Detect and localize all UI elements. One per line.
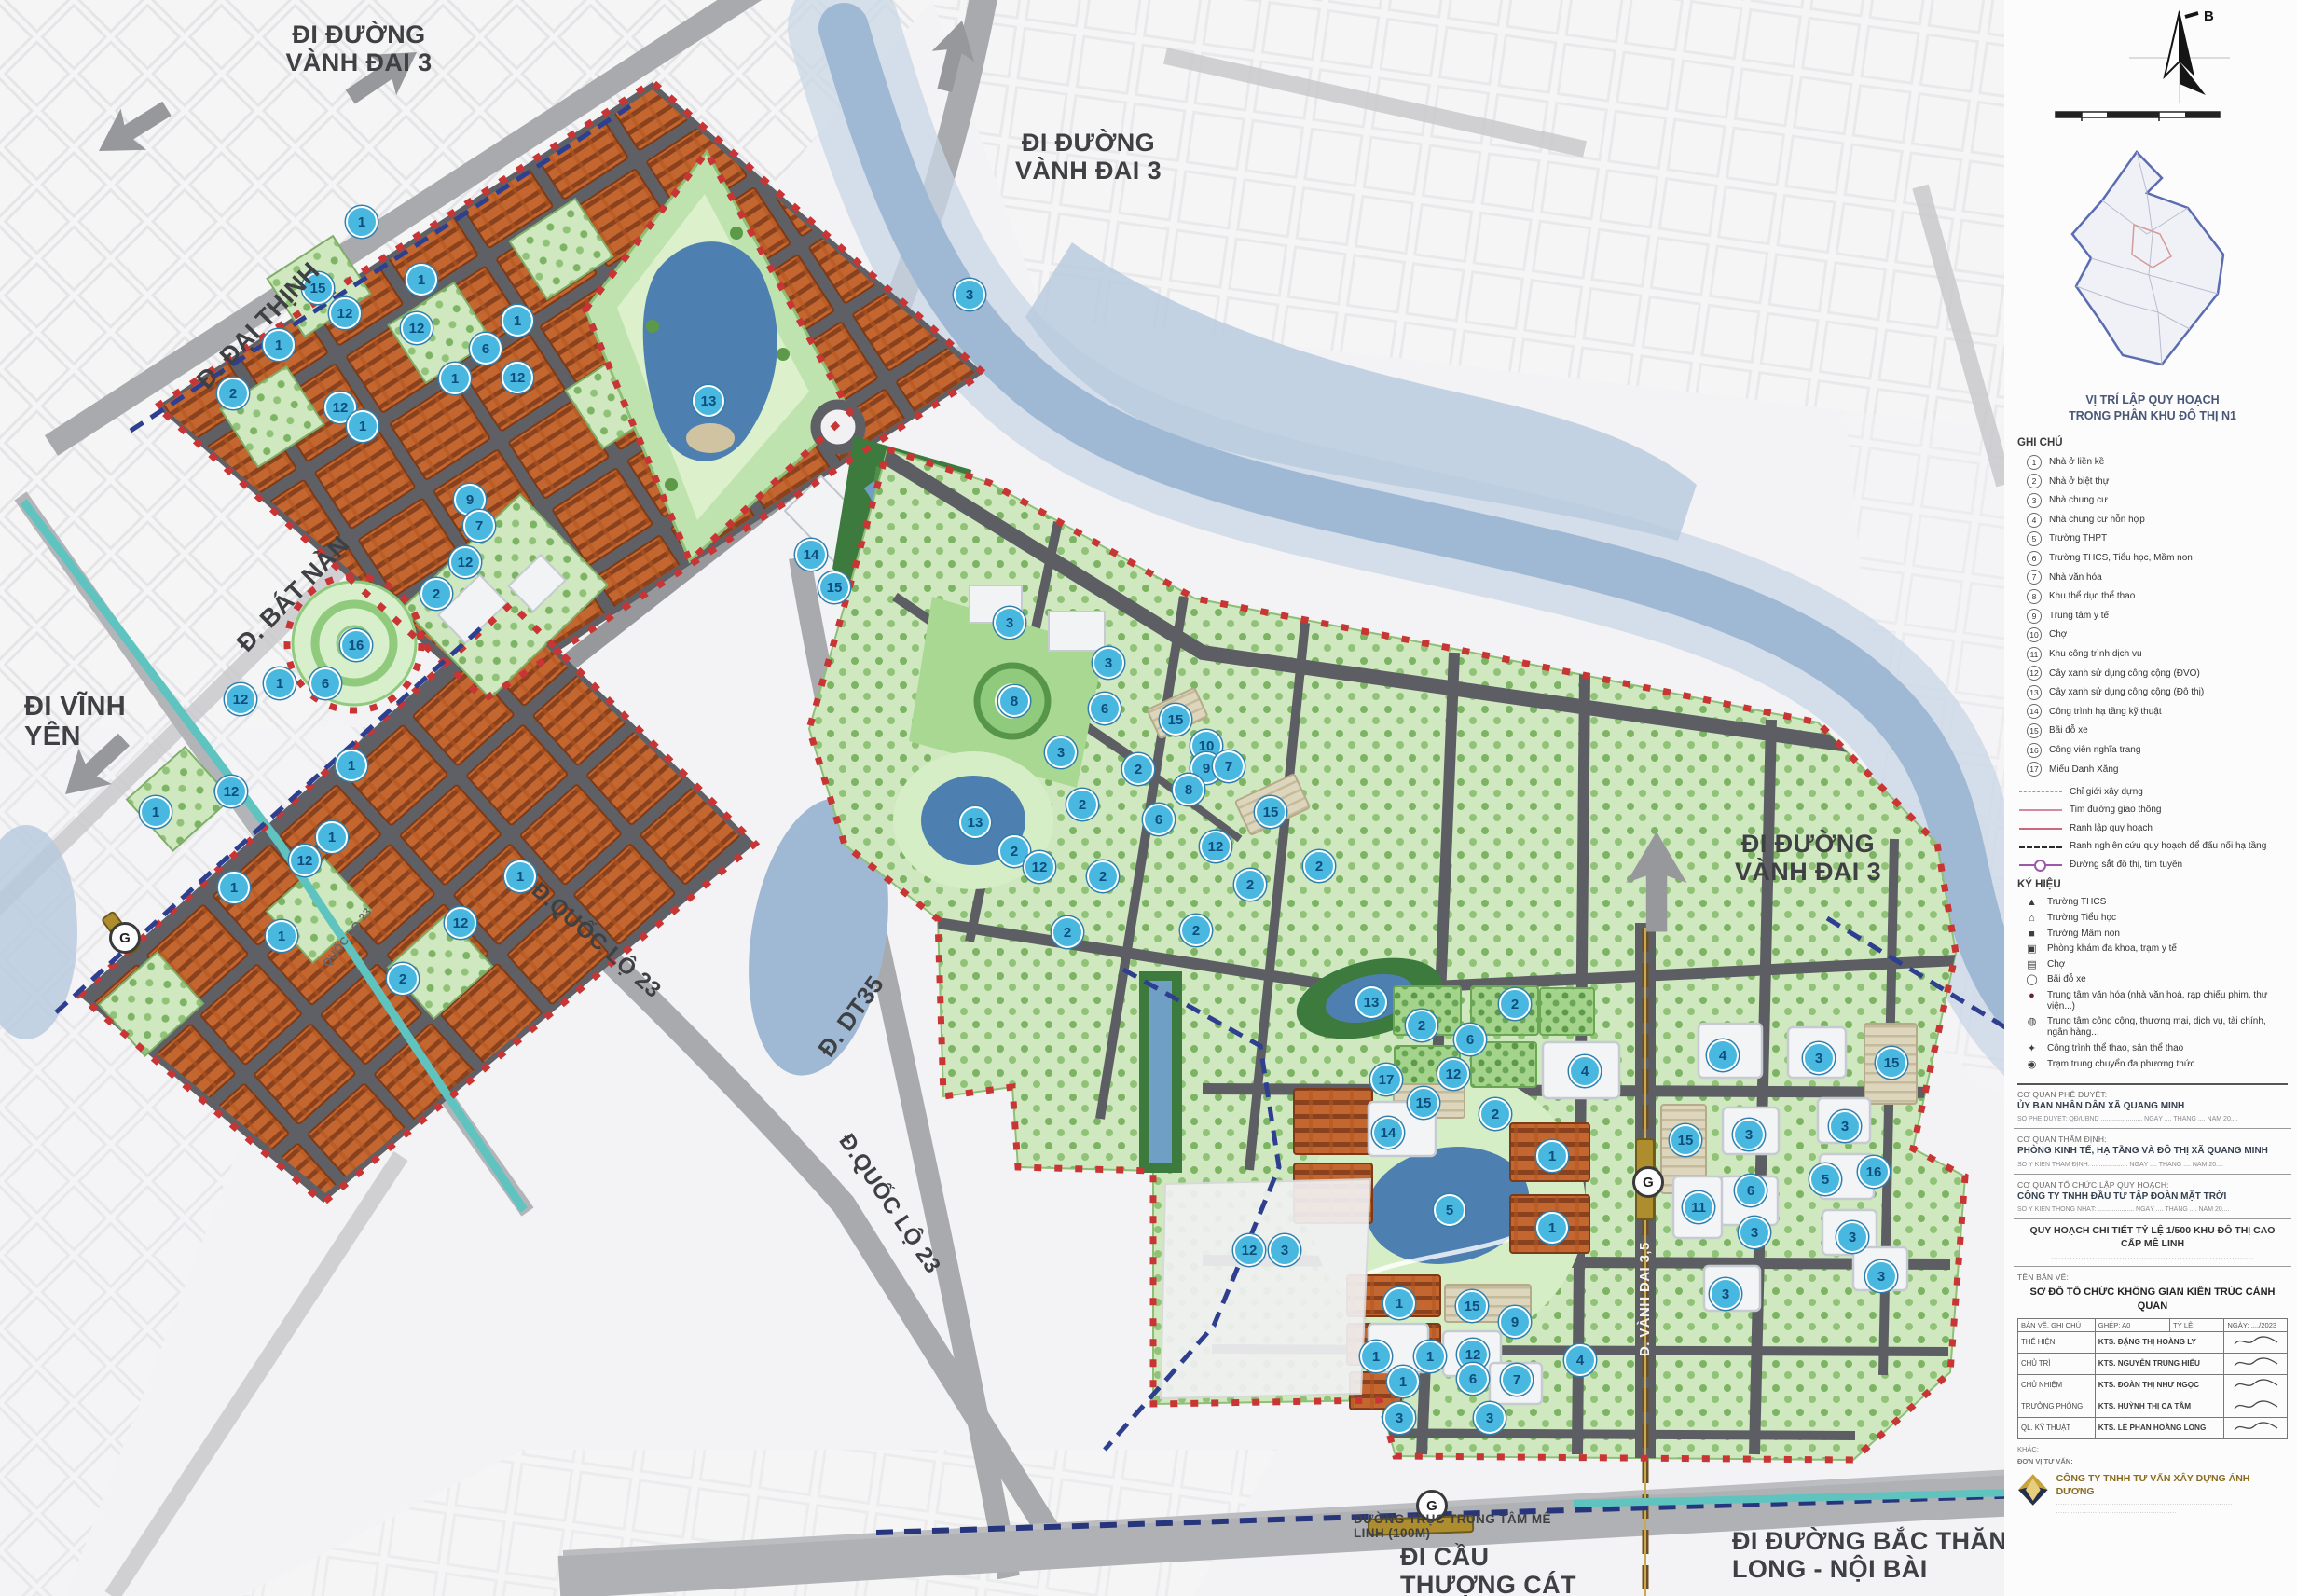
legend-item: 4 Nhà chung cư hỗn hợp bbox=[2027, 513, 2288, 528]
legend-item-label: Công trình hạ tầng kỹ thuật bbox=[2049, 707, 2162, 718]
legend-item: 3 Nhà chung cư bbox=[2027, 493, 2288, 508]
block-marker: 15 bbox=[1408, 1087, 1439, 1119]
symbol-item: ◍ Trung tâm công cộng, thương mại, dịch … bbox=[2025, 1016, 2288, 1039]
block-marker: 2 bbox=[1052, 916, 1083, 948]
block-marker: 13 bbox=[693, 385, 724, 417]
legend-lines: Chỉ giới xây dựng Tim đường giao thông R… bbox=[2017, 787, 2288, 871]
personnel-role: QL. KỸ THUẬT bbox=[2018, 1417, 2096, 1438]
other-label: KHÁC: bbox=[2017, 1445, 2288, 1453]
org-value: CÔNG TY TNHH ĐẦU TƯ TẬP ĐOÀN MẶT TRỜI bbox=[2017, 1191, 2288, 1204]
legend-number-icon: 1 bbox=[2027, 455, 2042, 470]
signature-squiggle bbox=[2232, 1377, 2280, 1392]
legend-item: 8 Khu thể dục thể thao bbox=[2027, 589, 2288, 604]
block-marker: 6 bbox=[1735, 1175, 1767, 1206]
block-marker: 17 bbox=[1370, 1064, 1402, 1095]
block-marker: 2 bbox=[387, 963, 419, 995]
legend-item-label: Nhà ở liền kề bbox=[2049, 457, 2104, 468]
block-marker: 15 bbox=[1255, 796, 1286, 828]
org-label: CƠ QUAN TỔ CHỨC LẬP QUY HOẠCH: bbox=[2017, 1180, 2288, 1190]
legend-item-label: Bãi đỗ xe bbox=[2049, 725, 2088, 736]
symbol-item: ◉ Trạm trung chuyển đa phương thức bbox=[2025, 1059, 2288, 1070]
symbol-icon: ◯ bbox=[2025, 974, 2039, 985]
company-contact: ........................................… bbox=[2056, 1508, 2288, 1515]
location-inset-map bbox=[2048, 144, 2258, 387]
legend-item-label: Trường THCS, Tiểu học, Mầm non bbox=[2049, 553, 2193, 564]
drawing-title: SƠ ĐỒ TỔ CHỨC KHÔNG GIAN KIẾN TRÚC CẢNH … bbox=[2017, 1286, 2288, 1313]
signature bbox=[2224, 1396, 2288, 1417]
legend-item-label: Khu công trình dịch vụ bbox=[2049, 649, 2142, 660]
block-marker: 16 bbox=[1858, 1156, 1890, 1188]
legend-number-icon: 2 bbox=[2027, 474, 2042, 488]
block-marker: 4 bbox=[1707, 1039, 1739, 1071]
block-marker: 12 bbox=[225, 683, 256, 715]
block-marker: 2 bbox=[1303, 850, 1335, 882]
legend-item: 17 Miếu Danh Xăng bbox=[2027, 762, 2288, 777]
block-marker: 9 bbox=[1499, 1306, 1531, 1338]
symbol-item-label: Bãi đỗ xe bbox=[2047, 974, 2086, 985]
block-marker: 11 bbox=[1683, 1191, 1714, 1223]
project-subtitle: ........................................… bbox=[2017, 1254, 2288, 1260]
block-marker: 13 bbox=[1355, 986, 1387, 1018]
legend-number-icon: 10 bbox=[2027, 627, 2042, 642]
symbol-item: ◯ Bãi đỗ xe bbox=[2025, 974, 2288, 985]
block-marker: 3 bbox=[1474, 1402, 1506, 1434]
project-title: QUY HOẠCH CHI TIẾT TỶ LỆ 1/500 KHU ĐÔ TH… bbox=[2019, 1225, 2286, 1250]
personnel-role: CHỦ NHIỆM bbox=[2018, 1374, 2096, 1396]
symbol-item-label: Công trình thể thao, sân thể thao bbox=[2047, 1043, 2183, 1054]
legend-number-icon: 13 bbox=[2027, 685, 2042, 700]
legend-number-icon: 8 bbox=[2027, 589, 2042, 604]
legend-item: 9 Trung tâm y tế bbox=[2027, 609, 2288, 624]
legend-item-label: Nhà ở biệt thự bbox=[2049, 476, 2109, 488]
legend-number-icon: 5 bbox=[2027, 531, 2042, 546]
legend-item-label: Khu thể dục thể thao bbox=[2049, 591, 2135, 602]
signature-squiggle bbox=[2232, 1355, 2280, 1370]
line-style-icon bbox=[2019, 864, 2062, 866]
block-marker: 12 bbox=[1200, 831, 1231, 862]
block-marker: 2 bbox=[420, 578, 452, 610]
symbol-icon: ⌂ bbox=[2025, 913, 2039, 924]
legend-line-item: Tim đường giao thông bbox=[2019, 805, 2288, 816]
block-marker: 3 bbox=[1836, 1221, 1868, 1253]
block-marker: 5 bbox=[1434, 1194, 1465, 1226]
block-marker: 15 bbox=[1160, 704, 1191, 736]
north-arrow: B bbox=[2017, 6, 2288, 106]
inset-caption: VỊ TRÍ LẬP QUY HOẠCH TRONG PHÂN KHU ĐÔ T… bbox=[2017, 392, 2288, 424]
block-marker: 15 bbox=[1670, 1124, 1701, 1156]
block-marker: 3 bbox=[1269, 1234, 1300, 1266]
symbol-item-label: Trường Tiểu học bbox=[2047, 913, 2116, 924]
legend-line-item: Ranh lập quy hoạch bbox=[2019, 823, 2288, 834]
masterplan-drawing: 1151211211612121219712216161211211121121… bbox=[0, 0, 2297, 1596]
block-marker: 8 bbox=[1173, 774, 1204, 805]
block-marker: 15 bbox=[1456, 1290, 1488, 1322]
block-marker: 5 bbox=[1809, 1163, 1841, 1195]
approve-label: CƠ QUAN PHÊ DUYỆT: bbox=[2017, 1090, 2288, 1099]
road-label: ĐI CẦU THƯỢNG CÁT bbox=[1400, 1543, 1576, 1596]
map-canvas bbox=[0, 0, 2297, 1596]
symbol-item-label: Trạm trung chuyển đa phương thức bbox=[2047, 1059, 2195, 1070]
block-marker: 3 bbox=[1739, 1217, 1770, 1248]
block-marker: 14 bbox=[795, 539, 827, 571]
block-marker: 7 bbox=[463, 510, 495, 542]
block-marker: 15 bbox=[1876, 1047, 1907, 1079]
block-marker: 1 bbox=[336, 750, 367, 781]
block-marker: 1 bbox=[502, 305, 533, 337]
legend-item: 1 Nhà ở liền kề bbox=[2027, 455, 2288, 470]
symbol-icon: ✦ bbox=[2025, 1043, 2039, 1054]
symbol-item-label: Trung tâm công cộng, thương mại, dịch vụ… bbox=[2047, 1016, 2288, 1039]
block-marker: 14 bbox=[1372, 1117, 1404, 1149]
block-marker: 6 bbox=[1457, 1363, 1489, 1395]
block-marker: 1 bbox=[504, 860, 536, 892]
legend-line-item: Ranh nghiên cứu quy hoạch để đấu nối hạ … bbox=[2019, 841, 2288, 852]
block-marker: 3 bbox=[1865, 1260, 1897, 1292]
block-marker: 15 bbox=[818, 571, 850, 603]
block-marker: 8 bbox=[998, 685, 1030, 717]
symbol-item: ✦ Công trình thể thao, sân thể thao bbox=[2025, 1043, 2288, 1054]
block-marker: 1 bbox=[140, 796, 172, 828]
block-marker: 12 bbox=[502, 362, 533, 393]
legend-number-icon: 11 bbox=[2027, 647, 2042, 662]
legend-title: GHI CHÚ bbox=[2017, 437, 2288, 448]
personnel-name: KTS. LÊ PHAN HOÀNG LONG bbox=[2095, 1417, 2224, 1438]
block-marker: 2 bbox=[1122, 753, 1154, 785]
block-marker: 7 bbox=[1501, 1364, 1533, 1396]
personnel-role: THỂ HIỆN bbox=[2018, 1331, 2096, 1353]
block-marker: 12 bbox=[1437, 1058, 1469, 1090]
personnel-role: TRƯỞNG PHÒNG bbox=[2018, 1396, 2096, 1417]
road-label: Đ. VÀNH ĐAI 3,5 bbox=[1638, 1242, 1654, 1356]
block-marker: 6 bbox=[1143, 804, 1175, 835]
block-marker: 3 bbox=[954, 279, 985, 310]
approve-value: ỦY BAN NHÂN DÂN XÃ QUANG MINH bbox=[2017, 1101, 2288, 1113]
legend-number-icon: 4 bbox=[2027, 513, 2042, 528]
block-marker: 12 bbox=[445, 907, 476, 939]
legend-number-icon: 14 bbox=[2027, 704, 2042, 719]
block-marker: 6 bbox=[470, 333, 502, 365]
personnel-role: CHỦ TRÌ bbox=[2018, 1353, 2096, 1374]
symbol-item-label: Trung tâm văn hóa (nhà văn hoá, rạp chiế… bbox=[2047, 990, 2288, 1012]
table-head-cell: BẢN VẼ, GHI CHÚ bbox=[2018, 1318, 2096, 1331]
block-marker: 3 bbox=[1383, 1402, 1415, 1434]
road-label: ĐƯỜNG TRỤC TRUNG TÂM MÊ LINH (100M) bbox=[1354, 1512, 1551, 1540]
block-marker: 1 bbox=[266, 920, 297, 952]
appraise-label: CƠ QUAN THẨM ĐỊNH: bbox=[2017, 1135, 2288, 1144]
block-marker: 6 bbox=[1454, 1024, 1486, 1055]
legend-item-label: Nhà văn hóa bbox=[2049, 572, 2102, 584]
personnel-name: KTS. HUỲNH THỊ CA TÂM bbox=[2095, 1396, 2224, 1417]
legend-item-label: Cây xanh sử dụng công cộng (Đô thị) bbox=[2049, 687, 2204, 698]
block-marker: 1 bbox=[439, 363, 471, 394]
personnel-row: QL. KỸ THUẬT KTS. LÊ PHAN HOÀNG LONG bbox=[2018, 1417, 2288, 1438]
symbol-items: ▲ Trường THCS ⌂ Trường Tiểu học ■ Trường… bbox=[2017, 897, 2288, 1069]
block-marker: 12 bbox=[401, 312, 433, 344]
scale-bar bbox=[2055, 108, 2288, 128]
personnel-row: CHỦ TRÌ KTS. NGUYỄN TRUNG HIẾU bbox=[2018, 1353, 2288, 1374]
symbol-item: ▲ Trường THCS bbox=[2025, 897, 2288, 908]
personnel-table: BẢN VẼ, GHI CHÚ GHÉP: A0 TỶ LỆ: NGÀY: ..… bbox=[2017, 1318, 2288, 1439]
org-line: SỐ Ý KIẾN THỐNG NHẤT: ..................… bbox=[2017, 1206, 2288, 1213]
legend-line-label: Tim đường giao thông bbox=[2070, 805, 2162, 816]
block-marker: 2 bbox=[1479, 1098, 1511, 1130]
approve-line: SỐ PHÊ DUYỆT: QĐ/UBND ..................… bbox=[2017, 1116, 2288, 1122]
block-marker: 1 bbox=[1360, 1341, 1392, 1372]
legend-line-item: Chỉ giới xây dựng bbox=[2019, 787, 2288, 798]
company-address: ........................................… bbox=[2056, 1500, 2288, 1507]
block-marker: 3 bbox=[1803, 1042, 1835, 1074]
legend-number-icon: 3 bbox=[2027, 493, 2042, 508]
legend-item: 12 Cây xanh sử dụng công cộng (ĐVO) bbox=[2027, 666, 2288, 681]
line-style-icon bbox=[2019, 809, 2062, 811]
line-style-icon bbox=[2019, 828, 2062, 830]
legend-number-icon: 17 bbox=[2027, 762, 2042, 777]
legend-line-label: Đường sắt đô thị, tim tuyến bbox=[2070, 860, 2182, 871]
symbol-item-label: Phòng khám đa khoa, trạm y tế bbox=[2047, 943, 2177, 955]
block-marker: 6 bbox=[1089, 693, 1121, 724]
legend-items: 1 Nhà ở liền kề 2 Nhà ở biệt thự 3 Nhà c… bbox=[2017, 455, 2288, 777]
personnel-row: THỂ HIỆN KTS. ĐẶNG THỊ HOÀNG LY bbox=[2018, 1331, 2288, 1353]
block-marker: 16 bbox=[340, 629, 372, 661]
signature bbox=[2224, 1331, 2288, 1353]
block-marker: 1 bbox=[264, 667, 296, 699]
block-marker: 12 bbox=[1024, 851, 1055, 883]
signature bbox=[2224, 1353, 2288, 1374]
block-marker: 2 bbox=[1087, 860, 1119, 892]
signature-squiggle bbox=[2232, 1420, 2280, 1435]
personnel-name: KTS. ĐOÀN THỊ NHƯ NGỌC bbox=[2095, 1374, 2224, 1396]
legend-item: 5 Trường THPT bbox=[2027, 531, 2288, 546]
title-block: CƠ QUAN PHÊ DUYỆT: ỦY BAN NHÂN DÂN XÃ QU… bbox=[2017, 1083, 2288, 1516]
block-marker: 1 bbox=[1383, 1287, 1415, 1319]
consultant-company: CÔNG TY TNHH TƯ VẤN XÂY DỰNG ÁNH DƯƠNG .… bbox=[2017, 1473, 2288, 1515]
symbol-item-label: Chợ bbox=[2047, 959, 2065, 970]
symbol-item: ■ Trường Mầm non bbox=[2025, 929, 2288, 940]
legend-number-icon: 16 bbox=[2027, 743, 2042, 758]
legend-item: 14 Công trình hạ tầng kỹ thuật bbox=[2027, 704, 2288, 719]
symbol-icon: ◍ bbox=[2025, 1016, 2039, 1027]
legend-item-label: Nhà chung cư bbox=[2049, 495, 2108, 506]
company-name: CÔNG TY TNHH TƯ VẤN XÂY DỰNG ÁNH DƯƠNG bbox=[2056, 1473, 2288, 1498]
personnel-name: KTS. ĐẶNG THỊ HOÀNG LY bbox=[2095, 1331, 2224, 1353]
block-marker: 13 bbox=[959, 806, 991, 838]
road-label: ĐI ĐƯỜNG BẮC THĂNG LONG - NỘI BÀI bbox=[1732, 1527, 2028, 1583]
table-head-cell: NGÀY: ..../2023 bbox=[2224, 1318, 2288, 1331]
symbol-item: ⌂ Trường Tiểu học bbox=[2025, 913, 2288, 924]
block-marker: 3 bbox=[1829, 1110, 1861, 1142]
legend-panel: B VỊ TRÍ LẬP QUY HOẠCH TRONG PHÂN KHU ĐÔ… bbox=[2004, 0, 2297, 1596]
block-marker: 6 bbox=[309, 667, 341, 699]
personnel-name: KTS. NGUYỄN TRUNG HIẾU bbox=[2095, 1353, 2224, 1374]
block-marker: 1 bbox=[1536, 1212, 1568, 1244]
north-label-svg: B bbox=[2204, 8, 2214, 24]
metro-station-marker: G bbox=[109, 922, 141, 954]
symbol-item-label: Trường Mầm non bbox=[2047, 929, 2120, 940]
appraise-line: SỐ Ý KIẾN THẨM ĐỊNH: ...................… bbox=[2017, 1162, 2288, 1168]
block-marker: 1 bbox=[218, 872, 250, 903]
personnel-row: CHỦ NHIỆM KTS. ĐOÀN THỊ NHƯ NGỌC bbox=[2018, 1374, 2288, 1396]
block-marker: 2 bbox=[1066, 789, 1098, 820]
block-marker: 3 bbox=[1710, 1278, 1741, 1310]
block-marker: 1 bbox=[1387, 1366, 1419, 1397]
legend-item: 6 Trường THCS, Tiểu học, Mầm non bbox=[2027, 551, 2288, 566]
legend-item-label: Nhà chung cư hỗn hợp bbox=[2049, 515, 2145, 526]
symbol-icon: ◉ bbox=[2025, 1059, 2039, 1070]
block-marker: 3 bbox=[1093, 647, 1124, 679]
legend-item-label: Miếu Danh Xăng bbox=[2049, 764, 2119, 776]
table-head-cell: GHÉP: A0 bbox=[2095, 1318, 2169, 1331]
legend-item-label: Công viên nghĩa trang bbox=[2049, 745, 2140, 756]
symbol-item: ▣ Phòng khám đa khoa, trạm y tế bbox=[2025, 943, 2288, 955]
block-marker: 2 bbox=[1234, 869, 1266, 901]
consultant-label: ĐƠN VỊ TƯ VẤN: bbox=[2017, 1457, 2288, 1465]
legend-item: 2 Nhà ở biệt thự bbox=[2027, 474, 2288, 488]
block-marker: 12 bbox=[1233, 1234, 1265, 1266]
line-style-icon bbox=[2019, 791, 2062, 792]
symbol-item: ● Trung tâm văn hóa (nhà văn hoá, rạp ch… bbox=[2025, 990, 2288, 1012]
legend-item: 15 Bãi đỗ xe bbox=[2027, 723, 2288, 738]
signature bbox=[2224, 1417, 2288, 1438]
metro-station-marker: G bbox=[1632, 1166, 1664, 1198]
legend-item: 16 Công viên nghĩa trang bbox=[2027, 743, 2288, 758]
legend-item-label: Cây xanh sử dụng công cộng (ĐVO) bbox=[2049, 668, 2200, 680]
block-marker: 1 bbox=[406, 264, 437, 296]
block-marker: 1 bbox=[316, 821, 348, 853]
legend-item-label: Trung tâm y tế bbox=[2049, 611, 2109, 622]
legend-number-icon: 15 bbox=[2027, 723, 2042, 738]
road-label: ĐI ĐƯỜNG VÀNH ĐAI 3 bbox=[1011, 129, 1165, 185]
legend-line-label: Ranh nghiên cứu quy hoạch để đấu nối hạ … bbox=[2070, 841, 2266, 852]
legend-number-icon: 12 bbox=[2027, 666, 2042, 681]
block-marker: 4 bbox=[1564, 1344, 1596, 1376]
road-label: ĐI ĐƯỜNG VÀNH ĐAI 3 bbox=[1726, 830, 1890, 886]
block-marker: 2 bbox=[1499, 988, 1531, 1020]
signature bbox=[2224, 1374, 2288, 1396]
signature-squiggle bbox=[2232, 1334, 2280, 1349]
legend-item: 13 Cây xanh sử dụng công cộng (Đô thị) bbox=[2027, 685, 2288, 700]
line-style-icon bbox=[2019, 846, 2062, 848]
block-marker: 12 bbox=[289, 845, 321, 876]
legend-item: 7 Nhà văn hóa bbox=[2027, 570, 2288, 585]
block-marker: 4 bbox=[1569, 1055, 1601, 1087]
symbol-icon: ■ bbox=[2025, 929, 2039, 940]
legend-item: 11 Khu công trình dịch vụ bbox=[2027, 647, 2288, 662]
road-label: ĐI ĐƯỜNG VÀNH ĐAI 3 bbox=[284, 21, 433, 76]
symbol-item: ▤ Chợ bbox=[2025, 959, 2288, 970]
table-head-cell: TỶ LỆ: bbox=[2170, 1318, 2224, 1331]
block-marker: 3 bbox=[1045, 736, 1077, 768]
block-marker: 7 bbox=[1213, 750, 1245, 782]
block-marker: 2 bbox=[1406, 1010, 1437, 1041]
legend-item: 10 Chợ bbox=[2027, 627, 2288, 642]
block-marker: 12 bbox=[449, 546, 481, 578]
legend-line-label: Ranh lập quy hoạch bbox=[2070, 823, 2153, 834]
legend-number-icon: 6 bbox=[2027, 551, 2042, 566]
block-marker: 1 bbox=[346, 206, 378, 238]
legend-number-icon: 7 bbox=[2027, 570, 2042, 585]
personnel-row: TRƯỞNG PHÒNG KTS. HUỲNH THỊ CA TÂM bbox=[2018, 1396, 2288, 1417]
symbol-icon: ● bbox=[2025, 990, 2039, 1001]
road-label: ĐI VĨNH YÊN bbox=[24, 692, 126, 752]
legend-line-label: Chỉ giới xây dựng bbox=[2070, 787, 2143, 798]
block-marker: 12 bbox=[329, 297, 361, 329]
signature-squiggle bbox=[2232, 1398, 2280, 1413]
block-marker: 3 bbox=[994, 607, 1025, 639]
legend-number-icon: 9 bbox=[2027, 609, 2042, 624]
block-marker: 12 bbox=[215, 776, 247, 807]
block-marker: 2 bbox=[1180, 915, 1212, 946]
legend-item-label: Chợ bbox=[2049, 629, 2067, 640]
legend-item-label: Trường THPT bbox=[2049, 533, 2107, 544]
appraise-value: PHÒNG KINH TẾ, HẠ TẦNG VÀ ĐÔ THỊ XÃ QUAN… bbox=[2017, 1146, 2288, 1158]
symbol-icon: ▣ bbox=[2025, 943, 2039, 955]
symbol-item-label: Trường THCS bbox=[2047, 897, 2106, 908]
drawing-label: TÊN BẢN VẼ: bbox=[2017, 1273, 2288, 1282]
symbol-icon: ▤ bbox=[2025, 959, 2039, 970]
company-logo bbox=[2017, 1473, 2049, 1507]
block-marker: 1 bbox=[347, 410, 378, 442]
symbol-icon: ▲ bbox=[2025, 897, 2039, 908]
block-marker: 1 bbox=[1414, 1341, 1446, 1372]
symbol-title: KÝ HIỆU bbox=[2017, 879, 2288, 890]
block-marker: 3 bbox=[1733, 1119, 1765, 1150]
block-marker: 1 bbox=[1536, 1140, 1568, 1172]
legend-line-item: Đường sắt đô thị, tim tuyến bbox=[2019, 860, 2288, 871]
